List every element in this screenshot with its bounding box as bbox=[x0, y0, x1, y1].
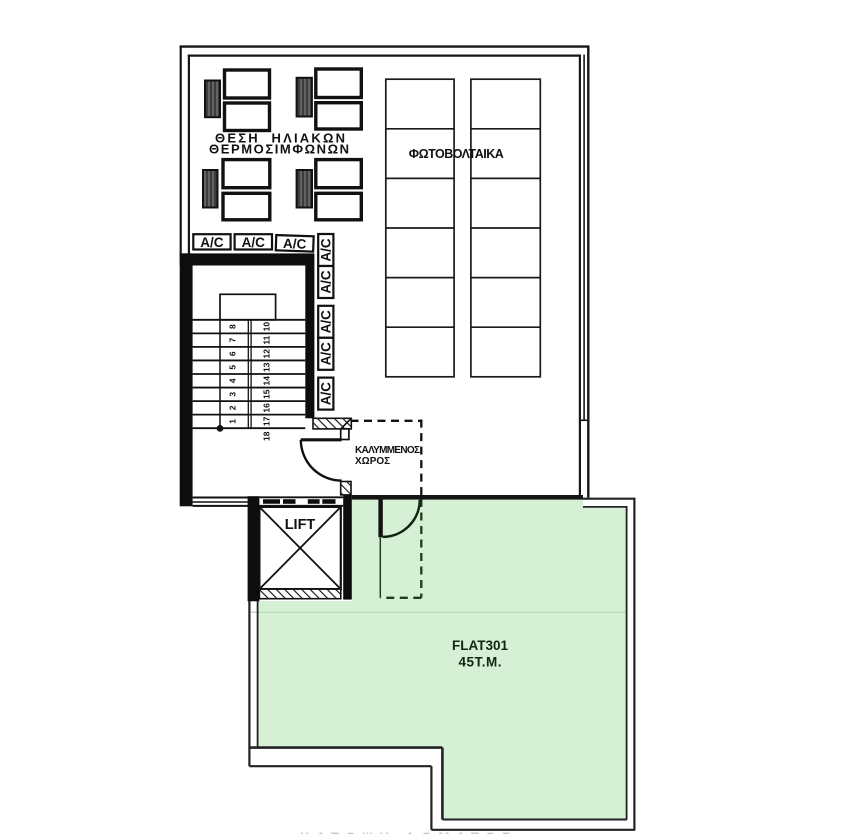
svg-text:A/C: A/C bbox=[319, 342, 334, 366]
svg-text:A/C: A/C bbox=[319, 382, 334, 406]
svg-text:8: 8 bbox=[228, 324, 238, 329]
svg-text:ΧΩΡΟΣ: ΧΩΡΟΣ bbox=[355, 456, 390, 467]
svg-text:12: 12 bbox=[261, 349, 271, 359]
svg-text:FLAT301: FLAT301 bbox=[452, 638, 508, 653]
svg-text:11: 11 bbox=[261, 335, 271, 344]
svg-text:ΚΑΛΥΜΜΕΝΟΣ: ΚΑΛΥΜΜΕΝΟΣ bbox=[355, 445, 420, 456]
svg-text:7: 7 bbox=[228, 337, 238, 342]
svg-text:6: 6 bbox=[228, 351, 238, 356]
svg-text:ΘΕΡΜΟΣΙΜΦΩΝΩΝ: ΘΕΡΜΟΣΙΜΦΩΝΩΝ bbox=[209, 142, 349, 157]
svg-text:14: 14 bbox=[261, 376, 271, 386]
svg-text:17: 17 bbox=[261, 416, 271, 426]
svg-text:A/C: A/C bbox=[200, 235, 224, 250]
svg-text:16: 16 bbox=[261, 403, 271, 413]
svg-text:A/C: A/C bbox=[319, 270, 334, 294]
svg-text:LIFT: LIFT bbox=[285, 517, 316, 533]
svg-text:ΚΑΤΟΨΗ ΔΩΜΑΤΟΣ: ΚΑΤΟΨΗ ΔΩΜΑΤΟΣ bbox=[300, 830, 510, 835]
svg-text:5: 5 bbox=[228, 365, 238, 370]
svg-text:2: 2 bbox=[228, 405, 238, 410]
svg-text:A/C: A/C bbox=[242, 235, 266, 250]
svg-text:3: 3 bbox=[228, 392, 238, 397]
svg-text:18: 18 bbox=[261, 431, 271, 441]
svg-text:A/C: A/C bbox=[283, 236, 307, 252]
svg-text:10: 10 bbox=[261, 322, 271, 332]
svg-text:13: 13 bbox=[261, 362, 271, 372]
svg-text:15: 15 bbox=[261, 389, 271, 399]
svg-text:4: 4 bbox=[228, 378, 238, 383]
svg-text:1: 1 bbox=[228, 419, 238, 424]
svg-text:ΦΩΤΟΒΟΛΤΑΙΚΑ: ΦΩΤΟΒΟΛΤΑΙΚΑ bbox=[409, 147, 504, 161]
svg-text:A/C: A/C bbox=[319, 238, 334, 262]
svg-text:45T.M.: 45T.M. bbox=[459, 655, 502, 670]
svg-text:A/C: A/C bbox=[319, 310, 334, 334]
